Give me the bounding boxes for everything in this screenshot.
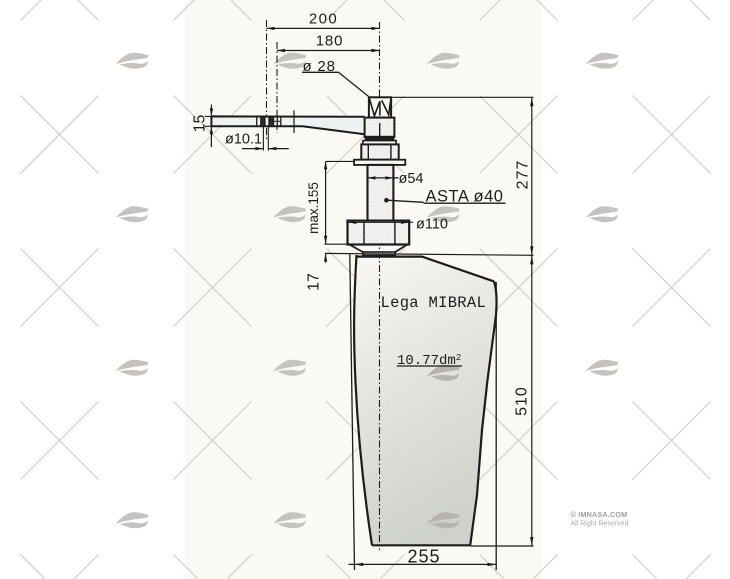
svg-text:15: 15 — [192, 115, 209, 133]
svg-text:277: 277 — [514, 160, 531, 190]
svg-text:ø54: ø54 — [399, 171, 424, 187]
svg-text:510: 510 — [514, 386, 531, 416]
svg-text:© IMNASA.COM: © IMNASA.COM — [571, 510, 628, 519]
svg-text:200: 200 — [309, 10, 338, 27]
svg-text:ø 28: ø 28 — [303, 58, 336, 75]
svg-text:10.77dm2: 10.77dm2 — [397, 353, 461, 369]
svg-text:ø110: ø110 — [416, 216, 448, 232]
svg-text:255: 255 — [407, 547, 440, 567]
svg-text:ø10.1: ø10.1 — [225, 131, 262, 147]
svg-text:ASTA ø40: ASTA ø40 — [426, 187, 504, 205]
svg-text:17: 17 — [306, 273, 323, 291]
svg-text:Lega MIBRAL: Lega MIBRAL — [381, 294, 487, 312]
svg-text:180: 180 — [316, 33, 343, 50]
svg-text:All Right Reserved: All Right Reserved — [571, 521, 629, 528]
svg-text:max.155: max.155 — [306, 182, 321, 234]
